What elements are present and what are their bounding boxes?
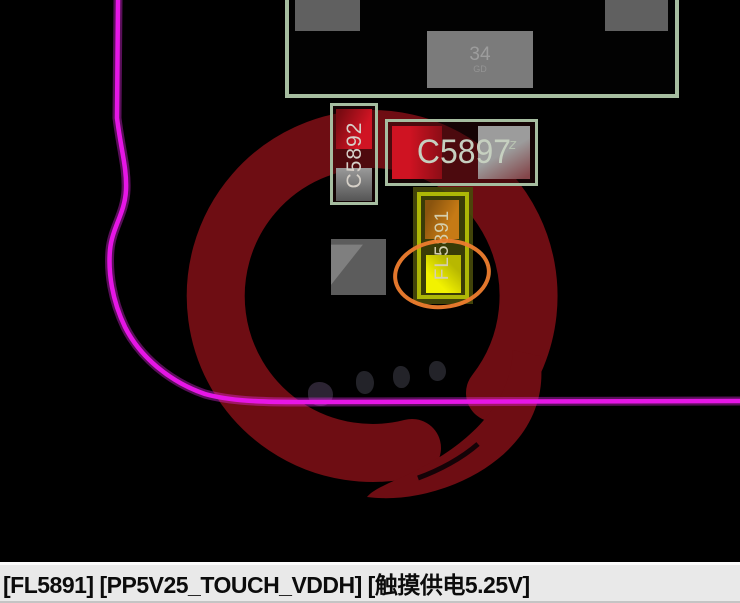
pad-top-right[interactable] <box>605 0 668 31</box>
status-bar: [FL5891] [PP5V25_TOUCH_VDDH] [触摸供电5.25V] <box>0 562 740 603</box>
small-pad-blob <box>393 366 410 388</box>
c5897-sub-label: z <box>509 136 517 153</box>
pad-34-subvalue: GD <box>473 64 487 74</box>
small-pad-blob <box>356 371 374 394</box>
pad-34-value: 34 <box>469 46 490 64</box>
c5897-label: C5897 <box>402 133 526 172</box>
fl5891-label: FL5891 <box>432 195 454 295</box>
small-pad-blob <box>308 382 333 406</box>
boardview-canvas[interactable]: 34 GD C5892 C5897 z FL5891 [FL5891] [PP5… <box>0 0 740 603</box>
c5892-label: C5892 <box>343 105 367 205</box>
pad-top-left[interactable] <box>295 0 360 31</box>
small-pad-blob <box>429 361 446 381</box>
pad-34[interactable]: 34 GD <box>427 31 533 88</box>
status-text: [FL5891] [PP5V25_TOUCH_VDDH] [触摸供电5.25V] <box>3 566 740 600</box>
gray-square-pad[interactable] <box>331 239 386 295</box>
gray-square-wedge <box>331 239 386 295</box>
